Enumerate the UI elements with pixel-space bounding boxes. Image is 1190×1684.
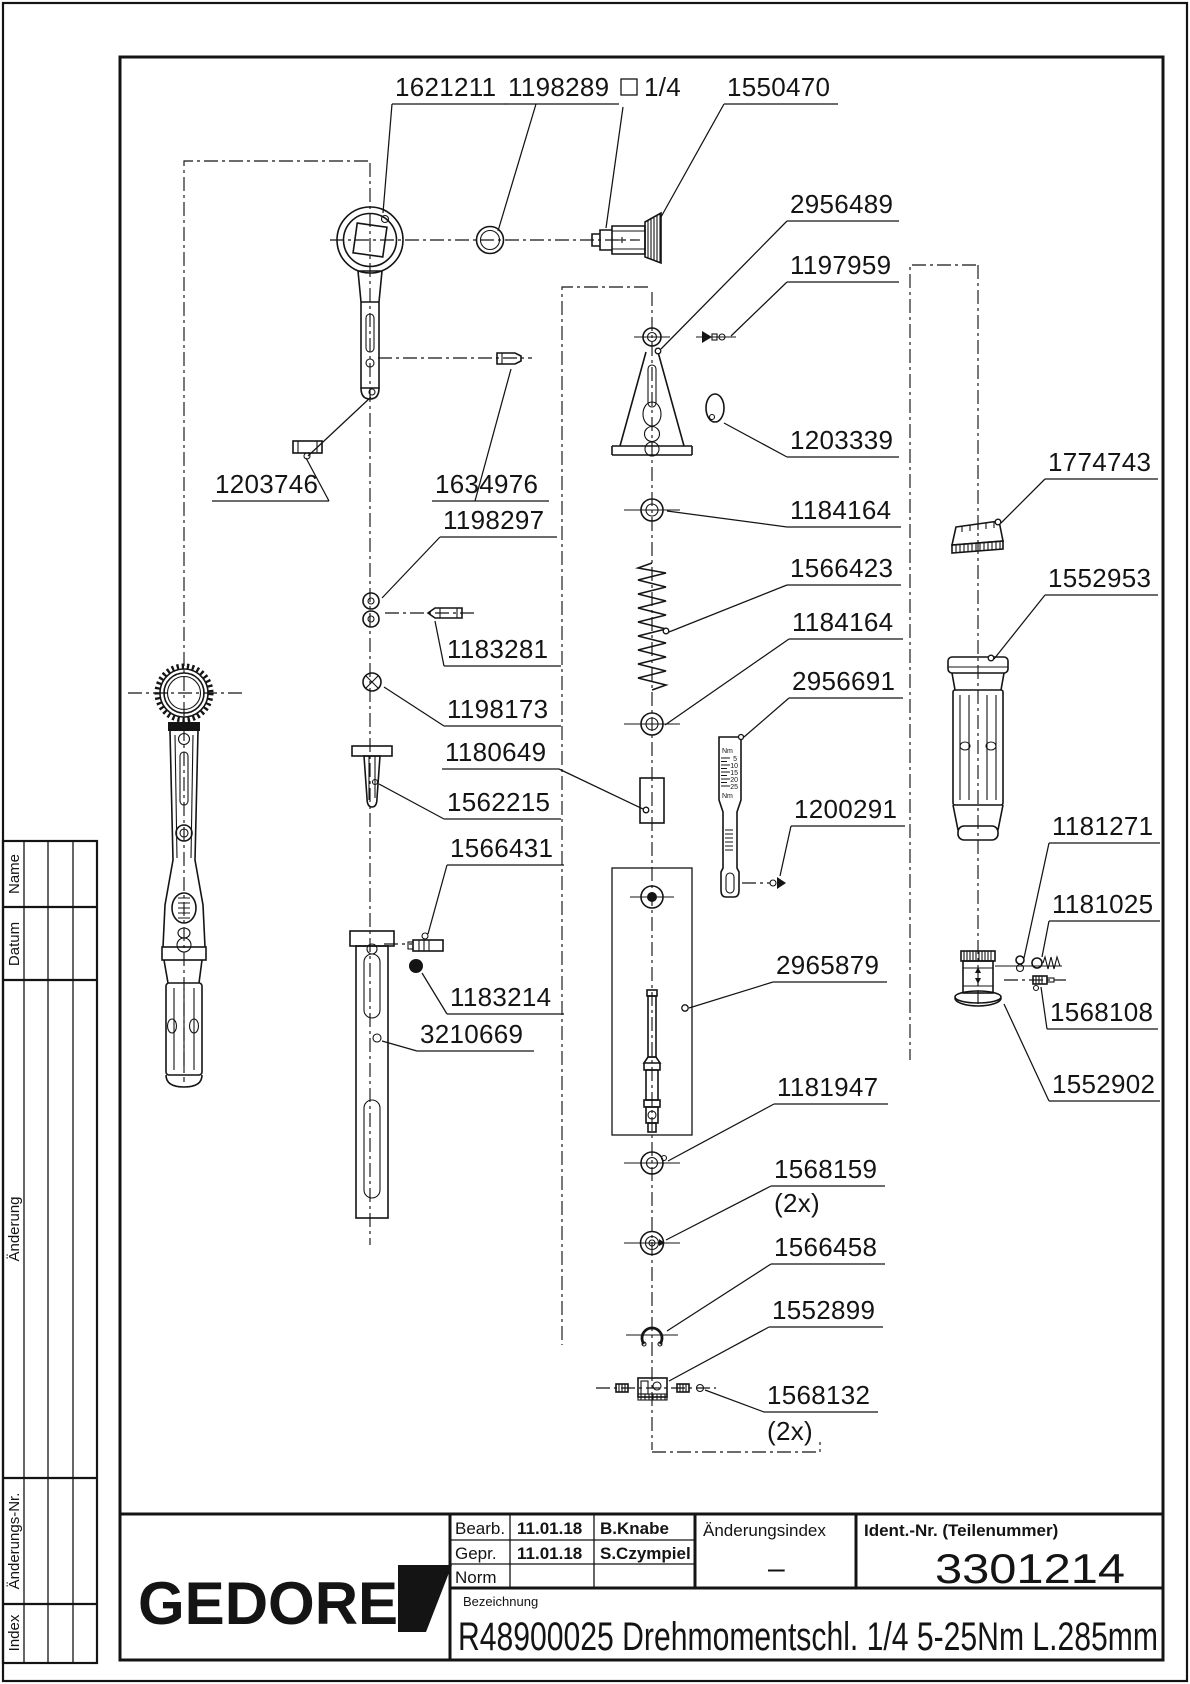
adapter-knurl-hatch xyxy=(648,214,660,262)
part-label-3210669: 3210669 xyxy=(382,1019,534,1051)
norm-label: Norm xyxy=(455,1568,497,1587)
bezeichnung-value: R48900025 Drehmomentschl. 1/4 5-25Nm L.2… xyxy=(458,1615,1158,1659)
revision-index-label: Index xyxy=(6,1614,23,1651)
wrench-grip-oval-left xyxy=(168,1019,177,1033)
scale-tick-5: 5 xyxy=(733,756,737,763)
svg-text:1566458: 1566458 xyxy=(774,1232,877,1262)
leader xyxy=(689,982,887,1008)
drawing-frame xyxy=(120,57,1163,1660)
part-label-1181025: 1181025 xyxy=(1042,889,1160,957)
svg-text:1181947: 1181947 xyxy=(777,1072,878,1102)
scale-tick-15: 15 xyxy=(730,770,738,777)
svg-text:2965879: 2965879 xyxy=(776,950,879,980)
part-label-1621211: 1621211 xyxy=(383,72,506,213)
leader xyxy=(1001,479,1158,523)
revision-datum-label: Datum xyxy=(6,922,23,966)
tube-hole-3210669 xyxy=(373,1034,381,1042)
ball-1181271-a xyxy=(1016,956,1024,964)
svg-text:1/4: 1/4 xyxy=(644,72,681,102)
gepr-date: 11.01.18 xyxy=(517,1544,582,1563)
part-label-1568108: 1568108 xyxy=(1041,987,1158,1029)
spring-1181025 xyxy=(1043,957,1060,969)
revision-aenderungs-nr-label: Änderungs-Nr. xyxy=(6,1493,23,1590)
leader xyxy=(744,698,903,737)
scale-ticks xyxy=(721,758,730,786)
scale-tick-10: 10 xyxy=(730,763,738,770)
leader xyxy=(498,104,619,231)
tube-body xyxy=(356,946,388,1218)
svg-text:1203746: 1203746 xyxy=(215,469,318,499)
scale-unit-top: Nm xyxy=(722,748,733,755)
nut-1198173-drawing xyxy=(363,673,381,691)
link-hole-top xyxy=(368,598,374,604)
pin-tip xyxy=(702,331,712,343)
leader-dot xyxy=(739,735,744,740)
part-label-1562215: 1562215 xyxy=(379,784,561,819)
leader xyxy=(731,282,899,336)
svg-text:1552899: 1552899 xyxy=(772,1295,875,1325)
link-circle-bottom xyxy=(363,611,379,627)
svg-text:1552902: 1552902 xyxy=(1052,1069,1155,1099)
bearb-date: 11.01.18 xyxy=(517,1519,582,1538)
revision-name-label: Name xyxy=(6,854,23,894)
oval-body xyxy=(706,394,724,422)
leader xyxy=(668,1104,888,1161)
leader-dot xyxy=(682,1005,688,1011)
wrench-dark-band xyxy=(168,722,200,731)
wrench-grip-ribs xyxy=(174,988,194,1070)
leader-dot xyxy=(995,519,1001,525)
pin-1197959-drawing xyxy=(696,331,736,343)
part-label-1197959: 1197959 xyxy=(731,250,899,336)
part-label-2965879: 2965879 xyxy=(682,950,887,1011)
part-label-2956691: 2956691 xyxy=(739,666,904,740)
sheet-outer-border xyxy=(3,3,1187,1681)
part-label-1568132: 1568132(2x) xyxy=(705,1380,878,1446)
part-label-1568159: 1568159(2x) xyxy=(666,1154,885,1240)
revision-strip: Name Datum Änderung Änderungs-Nr. Index xyxy=(3,841,97,1663)
ball-1183214-drawing xyxy=(409,959,423,973)
svg-text:1568132: 1568132 xyxy=(767,1380,870,1410)
title-block: GEDORE Bearb. 11.01.18 B.Knabe Gepr. 11.… xyxy=(120,1514,1163,1660)
gepr-name: S.Czympiel xyxy=(600,1544,691,1563)
pin-head xyxy=(352,746,392,756)
svg-text:1198289: 1198289 xyxy=(508,72,609,102)
cap-hole xyxy=(653,1382,661,1390)
link-hole-bottom xyxy=(368,616,374,622)
screw-1568108-dot xyxy=(1034,986,1039,991)
svg-text:2956691: 2956691 xyxy=(792,666,895,696)
link-1198297-drawing xyxy=(363,593,379,627)
sheet-borders xyxy=(3,3,1187,1681)
leader xyxy=(994,595,1158,659)
tube-slot-upper xyxy=(364,954,380,1018)
revision-aenderung-label: Änderung xyxy=(6,1196,23,1261)
leader-dot xyxy=(988,655,994,661)
wrench-grip-taper xyxy=(164,960,202,983)
clip-tab xyxy=(304,453,310,459)
leader xyxy=(606,107,623,228)
svg-text:1550470: 1550470 xyxy=(727,72,830,102)
svg-text:1183281: 1183281 xyxy=(447,634,548,664)
part-label-1181947: 1181947 xyxy=(668,1072,888,1161)
part-labels: 1621211 1198289 1/4 1550470 2956489 1197… xyxy=(212,72,1160,1446)
tube-slot-lower xyxy=(364,1100,380,1198)
oval-1203339-drawing xyxy=(706,394,724,422)
phantom-box-left xyxy=(184,161,368,1082)
square-drive-icon xyxy=(621,79,637,95)
aenderungsindex-label: Änderungsindex xyxy=(703,1521,826,1540)
drawing-sheet: Name Datum Änderung Änderungs-Nr. Index xyxy=(0,0,1190,1684)
quantity-note: (2x) xyxy=(767,1416,813,1446)
scale-tick-25: 25 xyxy=(730,784,738,791)
bezeichnung-label: Bezeichnung xyxy=(463,1594,538,1609)
svg-text:1203339: 1203339 xyxy=(790,425,893,455)
pin-top-ball xyxy=(422,933,428,939)
scale-unit-bottom: Nm xyxy=(722,793,733,800)
svg-text:1568108: 1568108 xyxy=(1050,997,1153,1027)
part-label-1200291: 1200291 xyxy=(780,794,905,876)
part-label-1552953: 1552953 xyxy=(988,563,1158,661)
gedore-logo: GEDORE xyxy=(138,1570,398,1637)
svg-text:1197959: 1197959 xyxy=(790,250,891,280)
svg-text:1634976: 1634976 xyxy=(435,469,538,499)
pin-body xyxy=(413,940,443,951)
clip-1203746-drawing xyxy=(293,441,322,459)
part-label-1198289: 1198289 xyxy=(498,72,619,231)
gepr-label: Gepr. xyxy=(455,1544,497,1563)
part-label-1774743: 1774743 xyxy=(995,447,1158,525)
bearing-core xyxy=(647,892,657,902)
part-label-1198297: 1198297 xyxy=(382,505,557,598)
ident-nr-label: Ident.-Nr. (Teilenummer) xyxy=(864,1521,1058,1540)
adapter-1550470-drawing xyxy=(592,213,661,263)
cap-knurl-hatch xyxy=(641,1394,665,1400)
svg-text:1566423: 1566423 xyxy=(790,553,893,583)
svg-text:1180649: 1180649 xyxy=(445,737,546,767)
svg-text:1184164: 1184164 xyxy=(792,607,893,637)
svg-text:1181025: 1181025 xyxy=(1052,889,1153,919)
svg-text:1774743: 1774743 xyxy=(1048,447,1151,477)
part-label-1184164-a: 1184164 xyxy=(667,495,901,527)
part-label-square-quarter: 1/4 xyxy=(606,72,681,228)
scale-tick-20: 20 xyxy=(730,777,738,784)
assembled-wrench-drawing xyxy=(158,667,211,1088)
svg-text:3210669: 3210669 xyxy=(420,1019,523,1049)
part-label-1183214: 1183214 xyxy=(422,973,564,1014)
svg-text:1183214: 1183214 xyxy=(450,982,551,1012)
leader-dot xyxy=(643,807,649,813)
revision-strip-columns xyxy=(24,841,73,1663)
ratchet-head-drawing xyxy=(308,207,403,456)
link-circle-top xyxy=(363,593,379,609)
leader xyxy=(780,826,905,876)
tube-drawing xyxy=(350,931,394,1218)
svg-text:1184164: 1184164 xyxy=(790,495,891,525)
svg-text:1562215: 1562215 xyxy=(447,787,550,817)
aenderungsindex-value: – xyxy=(768,1552,785,1585)
oval-hole xyxy=(710,415,715,420)
bearb-name: B.Knabe xyxy=(600,1519,669,1538)
scale-strip-2956691-drawing: Nm 5 10 15 20 25 Nm xyxy=(719,737,741,897)
leader xyxy=(382,537,557,598)
cap-1552899-drawing xyxy=(616,1378,704,1400)
leader-dot xyxy=(655,348,661,354)
gedore-logo-wedge-icon xyxy=(398,1565,452,1632)
pin-bands xyxy=(419,940,429,951)
svg-text:1198297: 1198297 xyxy=(443,505,544,535)
exploded-parts-drawing: Name Datum Änderung Änderungs-Nr. Index xyxy=(0,0,1190,1684)
centerlines xyxy=(128,161,1066,1452)
svg-text:1568159: 1568159 xyxy=(774,1154,877,1184)
scale-slot xyxy=(726,873,734,893)
svg-text:1200291: 1200291 xyxy=(794,794,897,824)
part-label-1203746: 1203746 xyxy=(212,458,329,501)
scale-barcode xyxy=(725,830,733,850)
detent-parts-drawing xyxy=(995,956,1062,991)
leader xyxy=(1042,921,1160,957)
phantom-box-right xyxy=(910,265,976,1060)
pin-tip xyxy=(777,877,786,889)
clip-detail xyxy=(298,441,317,453)
part-label-1203339: 1203339 xyxy=(724,423,899,457)
leader xyxy=(669,1327,883,1381)
leader xyxy=(383,104,506,213)
svg-text:1566431: 1566431 xyxy=(450,833,553,863)
leader xyxy=(661,221,899,349)
svg-text:1621211: 1621211 xyxy=(395,72,496,102)
pin-1566431-drawing xyxy=(408,933,443,951)
svg-text:2956489: 2956489 xyxy=(790,189,893,219)
part-label-1552899: 1552899 xyxy=(669,1295,883,1381)
part-label-1181271: 1181271 xyxy=(1024,811,1160,958)
pin-ball xyxy=(770,880,776,886)
washer-1184164b-drawing xyxy=(624,713,680,735)
part-label-1566431: 1566431 xyxy=(428,833,564,934)
adapter-knurl-cap xyxy=(645,213,661,263)
svg-text:1181271: 1181271 xyxy=(1052,811,1153,841)
quantity-note: (2x) xyxy=(774,1188,820,1218)
svg-text:1552953: 1552953 xyxy=(1048,563,1151,593)
pin-1200291-drawing xyxy=(770,877,786,889)
leader xyxy=(428,865,564,934)
part-label-1634976: 1634976 xyxy=(432,369,549,501)
part-label-1198173: 1198173 xyxy=(384,687,561,726)
part-label-1183281: 1183281 xyxy=(435,621,561,666)
pin-1562215-drawing xyxy=(352,746,392,807)
bearb-label: Bearb. xyxy=(455,1519,505,1538)
ident-nr-value: 3301214 xyxy=(935,1545,1125,1592)
leader-dot xyxy=(663,628,669,634)
nut-cross xyxy=(366,676,378,688)
svg-text:1198173: 1198173 xyxy=(447,694,548,724)
